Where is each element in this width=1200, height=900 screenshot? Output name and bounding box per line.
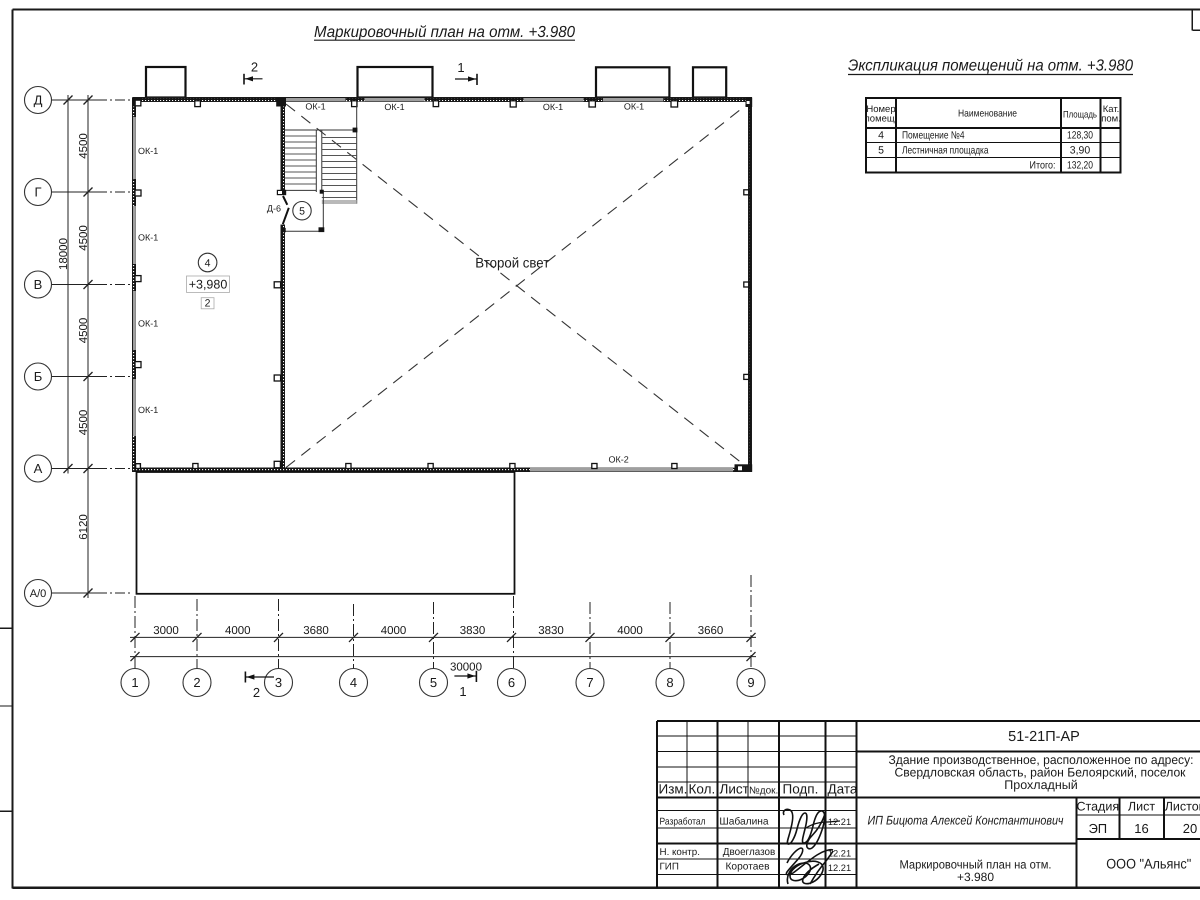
- svg-text:5: 5: [299, 206, 305, 218]
- svg-text:3830: 3830: [538, 625, 564, 637]
- svg-text:9: 9: [747, 675, 754, 690]
- svg-text:51-21П-АР: 51-21П-АР: [1008, 729, 1080, 745]
- svg-text:ОК-1: ОК-1: [138, 405, 158, 415]
- svg-text:5: 5: [430, 675, 437, 690]
- svg-text:4000: 4000: [381, 625, 407, 637]
- svg-text:3000: 3000: [153, 625, 179, 637]
- svg-text:2: 2: [253, 685, 260, 700]
- svg-text:ОК-1: ОК-1: [384, 102, 404, 112]
- svg-text:ОК-1: ОК-1: [138, 319, 158, 329]
- svg-text:ОК-1: ОК-1: [624, 102, 644, 112]
- svg-text:Н. контр.: Н. контр.: [660, 847, 700, 858]
- svg-text:4: 4: [205, 257, 211, 269]
- svg-text:ООО "Альянс": ООО "Альянс": [1106, 856, 1191, 872]
- svg-text:3,90: 3,90: [1070, 145, 1091, 157]
- svg-text:Наименование: Наименование: [958, 109, 1017, 120]
- svg-text:Подп.: Подп.: [783, 782, 819, 797]
- svg-text:Разработал: Разработал: [660, 817, 706, 828]
- svg-text:Лист: Лист: [720, 782, 749, 797]
- svg-text:4000: 4000: [225, 625, 251, 637]
- svg-text:Дата: Дата: [828, 782, 858, 797]
- svg-text:ЭП: ЭП: [1088, 821, 1107, 836]
- svg-text:4: 4: [350, 675, 357, 690]
- svg-text:18000: 18000: [58, 238, 70, 270]
- svg-text:В: В: [34, 277, 43, 292]
- svg-text:2: 2: [193, 675, 200, 690]
- svg-text:5: 5: [878, 145, 884, 157]
- svg-text:12.21: 12.21: [828, 863, 851, 873]
- svg-text:6: 6: [508, 675, 515, 690]
- svg-text:Кол.: Кол.: [689, 782, 716, 797]
- svg-text:4500: 4500: [78, 410, 90, 436]
- svg-text:1: 1: [459, 684, 466, 699]
- svg-text:4500: 4500: [78, 133, 90, 159]
- svg-text:6120: 6120: [78, 514, 90, 540]
- svg-text:128,30: 128,30: [1067, 130, 1093, 142]
- svg-text:ГИП: ГИП: [660, 862, 679, 873]
- svg-text:Стадия: Стадия: [1076, 800, 1119, 814]
- svg-text:Изм.: Изм.: [659, 782, 688, 797]
- svg-text:Площадь: Площадь: [1063, 110, 1097, 121]
- svg-text:Маркировочный план на отм. +3.: Маркировочный план на отм. +3.980: [314, 24, 575, 41]
- svg-text:Лист: Лист: [1128, 800, 1155, 814]
- svg-text:1: 1: [131, 675, 138, 690]
- svg-text:ОК-1: ОК-1: [543, 102, 563, 112]
- svg-text:пом.: пом.: [1101, 114, 1121, 125]
- svg-text:7: 7: [586, 675, 593, 690]
- svg-text:8: 8: [666, 675, 673, 690]
- svg-text:Г: Г: [34, 185, 41, 200]
- svg-text:Д: Д: [34, 93, 43, 108]
- svg-text:Второй свет: Второй свет: [475, 255, 550, 271]
- svg-text:Экспликация помещений на отм.: Экспликация помещений на отм. +3.980: [848, 58, 1133, 75]
- svg-text:3: 3: [275, 675, 282, 690]
- svg-text:3830: 3830: [460, 625, 486, 637]
- svg-text:3660: 3660: [698, 625, 724, 637]
- svg-text:Коротаев: Коротаев: [725, 862, 769, 873]
- svg-text:Шабалина: Шабалина: [719, 817, 769, 828]
- svg-text:ОК-1: ОК-1: [305, 102, 325, 112]
- svg-text:4500: 4500: [78, 318, 90, 344]
- svg-text:Итого:: Итого:: [1030, 160, 1056, 172]
- svg-text:20: 20: [1183, 821, 1197, 836]
- svg-text:А/0: А/0: [30, 588, 47, 600]
- svg-text:помещ.: помещ.: [865, 114, 898, 125]
- svg-text:А: А: [34, 461, 43, 476]
- svg-text:Д-6: Д-6: [267, 204, 281, 214]
- svg-text:ОК-1: ОК-1: [138, 233, 158, 243]
- svg-text:№док.: №док.: [749, 786, 778, 797]
- svg-text:+3,980: +3,980: [189, 278, 228, 292]
- svg-text:2: 2: [251, 60, 258, 75]
- svg-text:4000: 4000: [617, 625, 643, 637]
- svg-text:Лестничная площадка: Лестничная площадка: [902, 145, 989, 157]
- svg-text:4: 4: [878, 130, 884, 142]
- svg-text:2: 2: [205, 298, 211, 310]
- svg-text:4500: 4500: [78, 225, 90, 251]
- svg-text:132,20: 132,20: [1067, 160, 1093, 172]
- svg-text:3680: 3680: [303, 625, 329, 637]
- svg-text:Прохладный: Прохладный: [1004, 778, 1077, 792]
- svg-text:1: 1: [457, 60, 464, 75]
- svg-text:ОК-1: ОК-1: [138, 146, 158, 156]
- svg-text:Б: Б: [34, 369, 43, 384]
- svg-text:Листов: Листов: [1165, 800, 1200, 814]
- svg-text:ОК-2: ОК-2: [609, 455, 629, 465]
- svg-text:ИП Бицюта Алексей Константинов: ИП Бицюта Алексей Константинович: [868, 814, 1064, 828]
- svg-text:Помещение №4: Помещение №4: [902, 130, 965, 142]
- svg-text:+3.980: +3.980: [957, 870, 994, 884]
- svg-text:16: 16: [1134, 821, 1148, 836]
- svg-text:Двоеглазов: Двоеглазов: [723, 847, 776, 858]
